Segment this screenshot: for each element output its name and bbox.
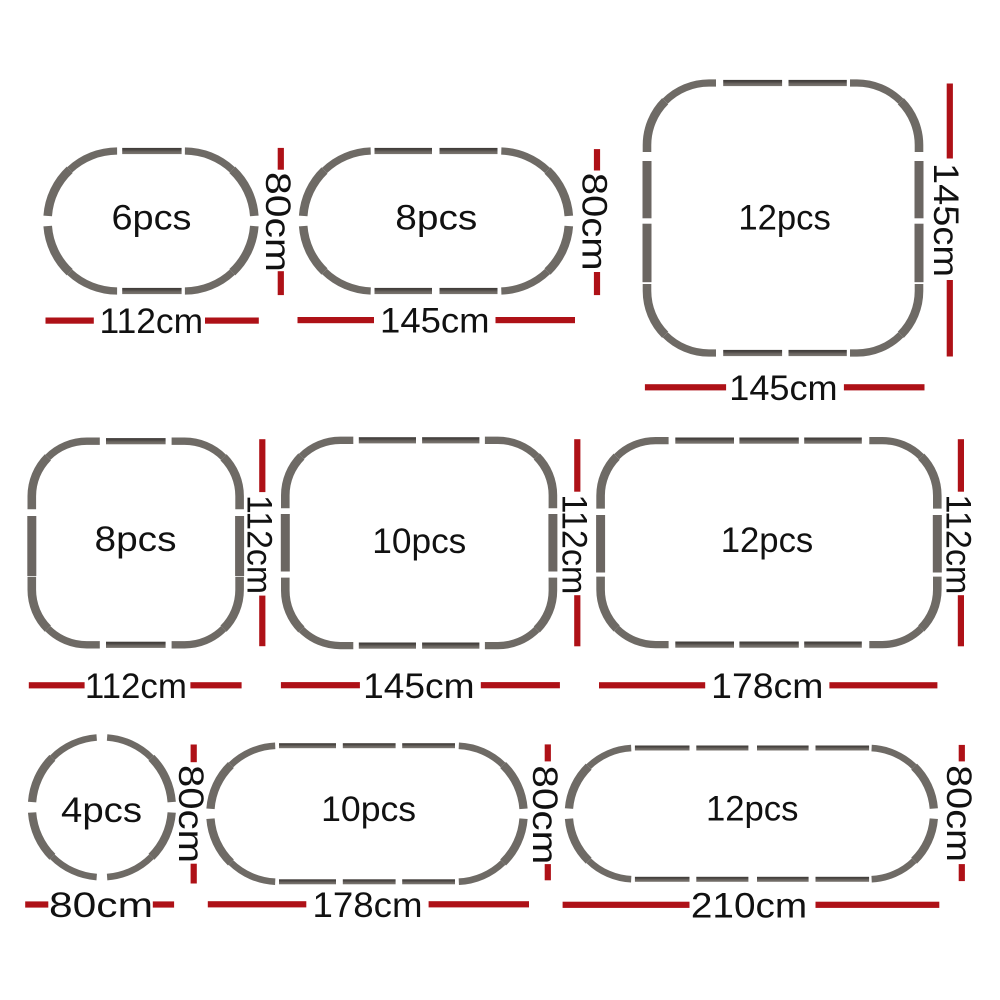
svg-text:10pcs: 10pcs [321, 790, 416, 829]
svg-text:8pcs: 8pcs [95, 520, 177, 559]
svg-text:12pcs: 12pcs [738, 199, 831, 238]
svg-text:80cm: 80cm [525, 765, 564, 864]
svg-text:10pcs: 10pcs [372, 522, 466, 561]
svg-text:145cm: 145cm [380, 302, 490, 341]
svg-text:80cm: 80cm [939, 765, 978, 862]
svg-text:112cm: 112cm [240, 495, 279, 594]
svg-text:80cm: 80cm [574, 173, 613, 271]
svg-text:145cm: 145cm [926, 163, 965, 277]
svg-text:210cm: 210cm [691, 886, 807, 925]
svg-text:178cm: 178cm [711, 667, 823, 706]
svg-text:8pcs: 8pcs [395, 199, 477, 238]
svg-text:4pcs: 4pcs [61, 791, 142, 830]
svg-text:6pcs: 6pcs [112, 199, 192, 238]
svg-text:12pcs: 12pcs [721, 521, 814, 560]
svg-text:112cm: 112cm [100, 302, 204, 341]
svg-text:145cm: 145cm [363, 667, 474, 706]
svg-text:80cm: 80cm [49, 886, 153, 925]
svg-text:80cm: 80cm [171, 765, 210, 863]
svg-text:12pcs: 12pcs [706, 790, 799, 829]
svg-text:112cm: 112cm [938, 494, 977, 594]
svg-text:178cm: 178cm [313, 886, 423, 925]
svg-text:145cm: 145cm [729, 369, 837, 408]
svg-text:112cm: 112cm [85, 667, 187, 706]
svg-text:112cm: 112cm [555, 494, 594, 594]
svg-text:80cm: 80cm [258, 172, 297, 272]
